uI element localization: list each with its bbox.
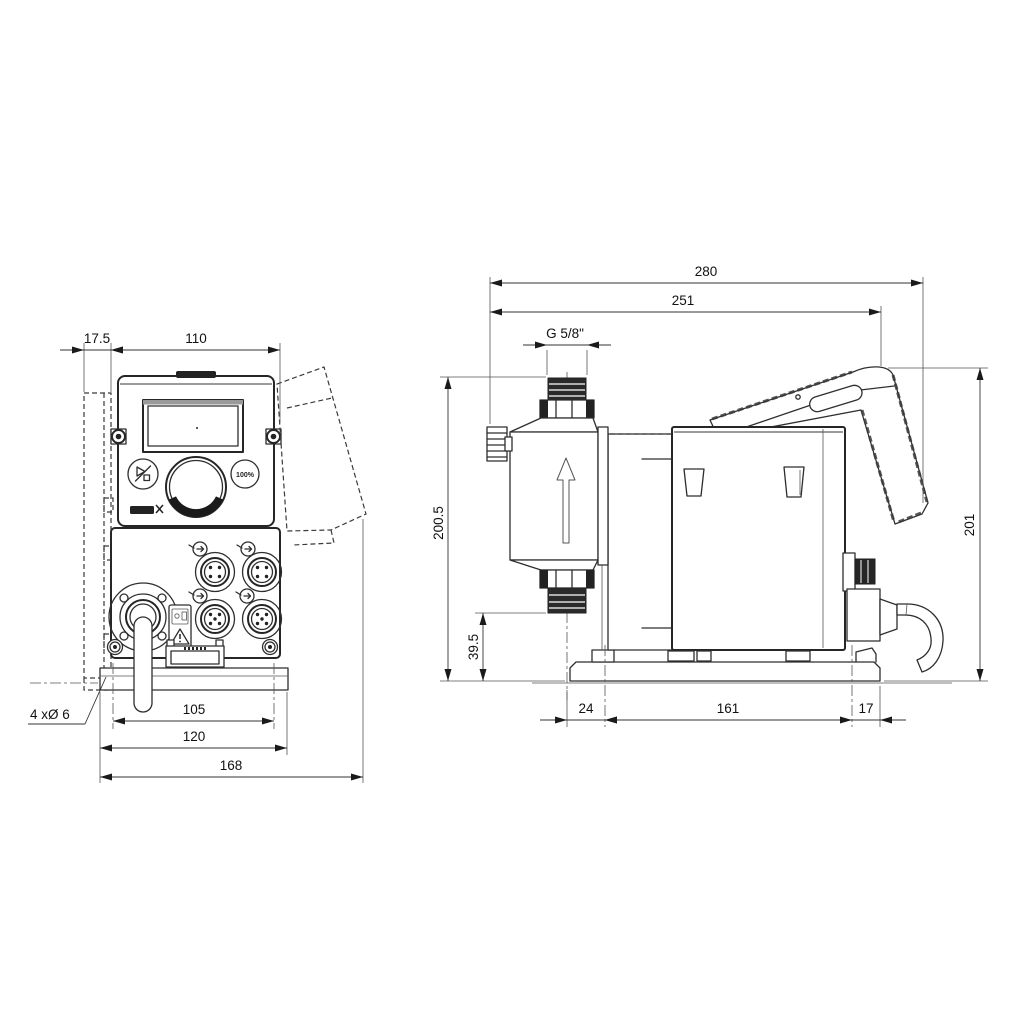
corner-screw (108, 640, 123, 655)
priming-button-label: 100% (236, 472, 255, 479)
dim-height-to-connection: 200.5 (431, 506, 446, 540)
dim-height-to-valve: 39.5 (466, 634, 481, 660)
display (143, 400, 243, 452)
wall-bracket-hidden (277, 367, 366, 545)
base-plate-front (100, 668, 288, 690)
corner-screw (263, 640, 278, 655)
dim-body-width: 110 (185, 331, 207, 346)
dim-plate-hole-spacing: 161 (717, 701, 740, 716)
dim-overall-height: 201 (962, 514, 977, 537)
dim-overall-width: 168 (220, 758, 243, 773)
dim-depth-to-bracket: 251 (672, 293, 695, 308)
note-mounting-holes: 4 xØ 6 (30, 707, 70, 722)
dosing-pump-dimensional-drawing: 100% (0, 0, 1024, 1024)
dim-overall-depth: 280 (695, 264, 718, 279)
start-stop-button[interactable] (128, 459, 158, 489)
clip (684, 469, 704, 496)
dim-connection-thread: G 5/8" (546, 326, 584, 341)
dim-plate-width: 120 (183, 729, 206, 744)
dim-plate-front-offset: 24 (578, 701, 594, 716)
vent-valve-knob (487, 427, 512, 461)
motor-housing (668, 427, 845, 661)
control-unit: 100% (111, 371, 281, 526)
side-screw (266, 429, 281, 444)
dim-plate-rear-offset: 17 (858, 701, 873, 716)
side-view: 280 251 G 5/8" 200.5 39.5 (431, 264, 988, 727)
top-tab (176, 371, 216, 378)
discharge-connection (540, 378, 594, 418)
m12-connector (243, 600, 282, 639)
side-screw (111, 429, 126, 444)
priming-button[interactable]: 100% (231, 460, 259, 488)
wall-plate-hidden (30, 393, 113, 690)
dosing-head (487, 372, 608, 700)
dim-hole-spacing: 105 (183, 702, 206, 717)
dim-bracket-offset: 17.5 (84, 331, 110, 346)
base-plate-side (570, 648, 880, 681)
click-wheel[interactable] (166, 457, 226, 517)
adapter-panel (602, 434, 673, 650)
power-cable (134, 617, 152, 712)
suction-connection (540, 570, 594, 613)
clip (784, 467, 804, 497)
mains-cable (897, 604, 943, 672)
front-view: 100% (28, 331, 366, 783)
cable-gland (847, 589, 897, 641)
rear-connections (843, 553, 943, 672)
network-connector (855, 559, 875, 584)
technical-drawing: 100% (0, 0, 1024, 1024)
m12-connector (196, 600, 235, 639)
